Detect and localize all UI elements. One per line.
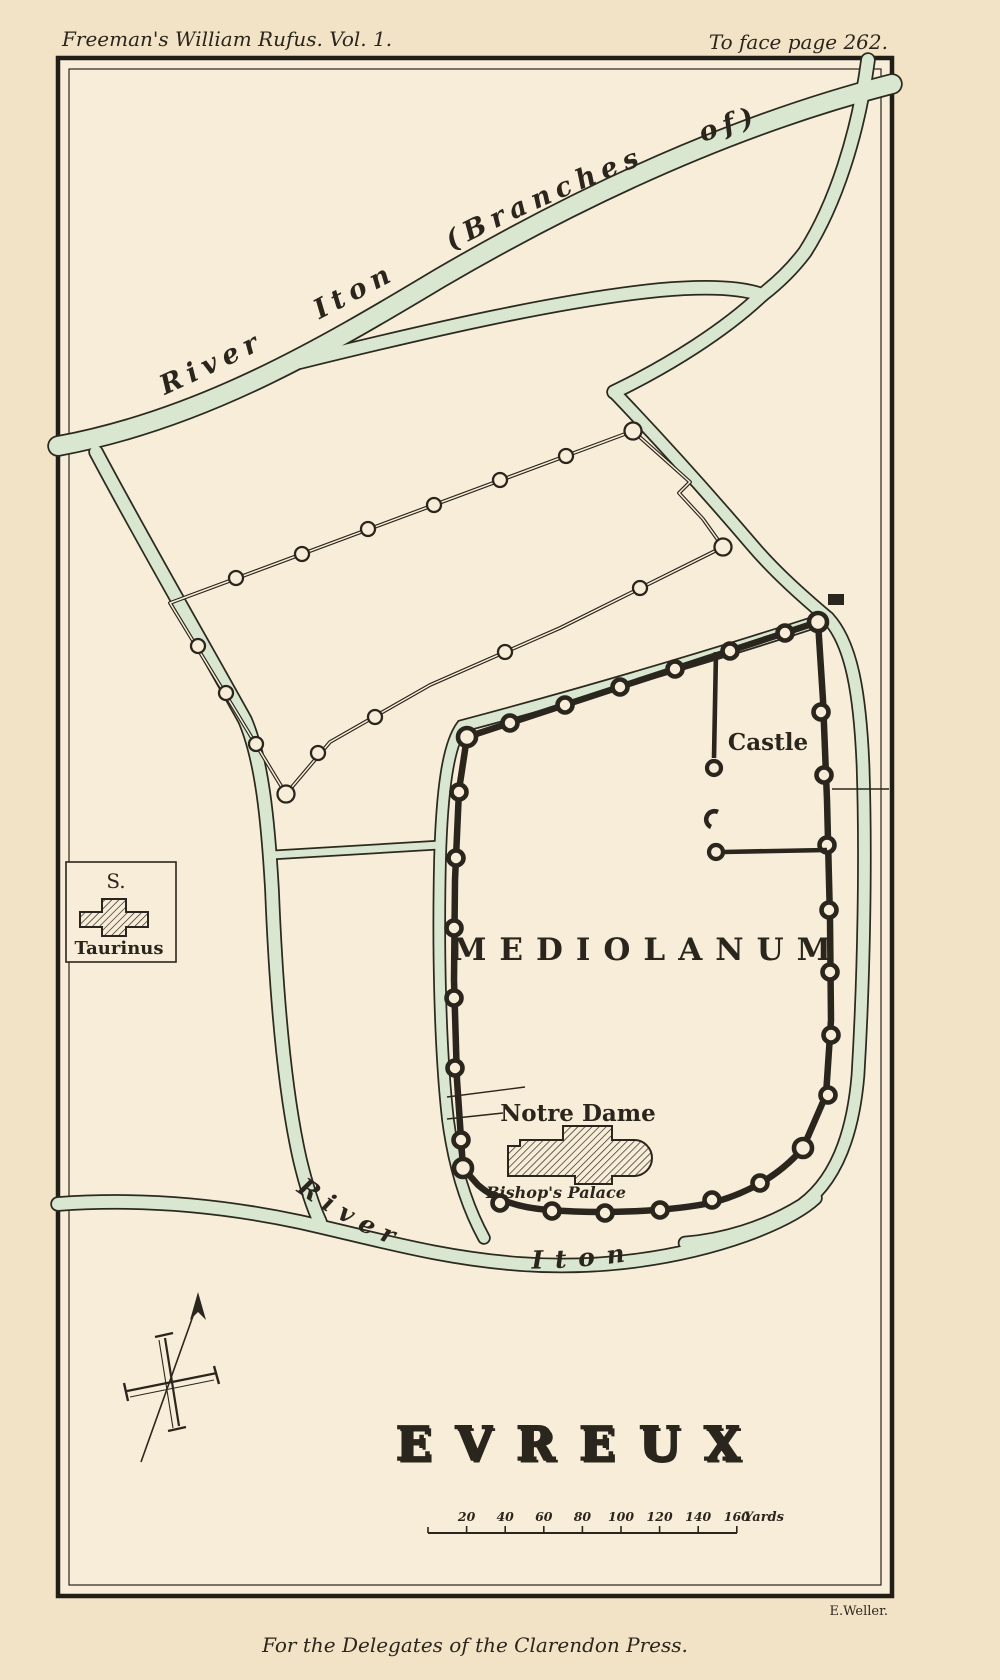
castle-corner-block [828, 594, 844, 605]
header-right: To face page 262. [709, 30, 888, 54]
header-left: Freeman's William Rufus. Vol. 1. [61, 27, 392, 51]
evreux-map: River Iton (Branches of) River Iton [0, 0, 1000, 1680]
scale-tick-120: 120 [647, 1509, 673, 1524]
notre-dame-label: Notre Dame [500, 1100, 656, 1127]
title-text: EVREUX [396, 1417, 765, 1472]
st-taurinus-s-label: S. [106, 869, 125, 893]
scale-tick-40: 40 [496, 1509, 514, 1524]
scale-tick-60: 60 [535, 1509, 553, 1524]
scale-tick-20: 20 [457, 1509, 476, 1524]
scale-unit-label: Yards [744, 1510, 785, 1525]
footer-imprint: For the Delegates of the Clarendon Press… [261, 1633, 688, 1657]
map-sheet: River Iton (Branches of) River Iton [0, 0, 1000, 1680]
st-taurinus-name-label: Taurinus [74, 938, 163, 959]
bishops-palace-label: Bishop's Palace [485, 1183, 626, 1202]
st-taurinus: S. Taurinus [66, 862, 176, 962]
scale-tick-100: 100 [608, 1509, 634, 1524]
scale-tick-140: 140 [685, 1509, 711, 1524]
castle-label: Castle [728, 729, 808, 756]
mediolanum-label: MEDIOLANUM [452, 932, 844, 968]
map-title: EVREUX EVREUX [396, 1417, 767, 1475]
engraver-credit: E.Weller. [829, 1604, 888, 1619]
scale-tick-80: 80 [574, 1509, 592, 1524]
